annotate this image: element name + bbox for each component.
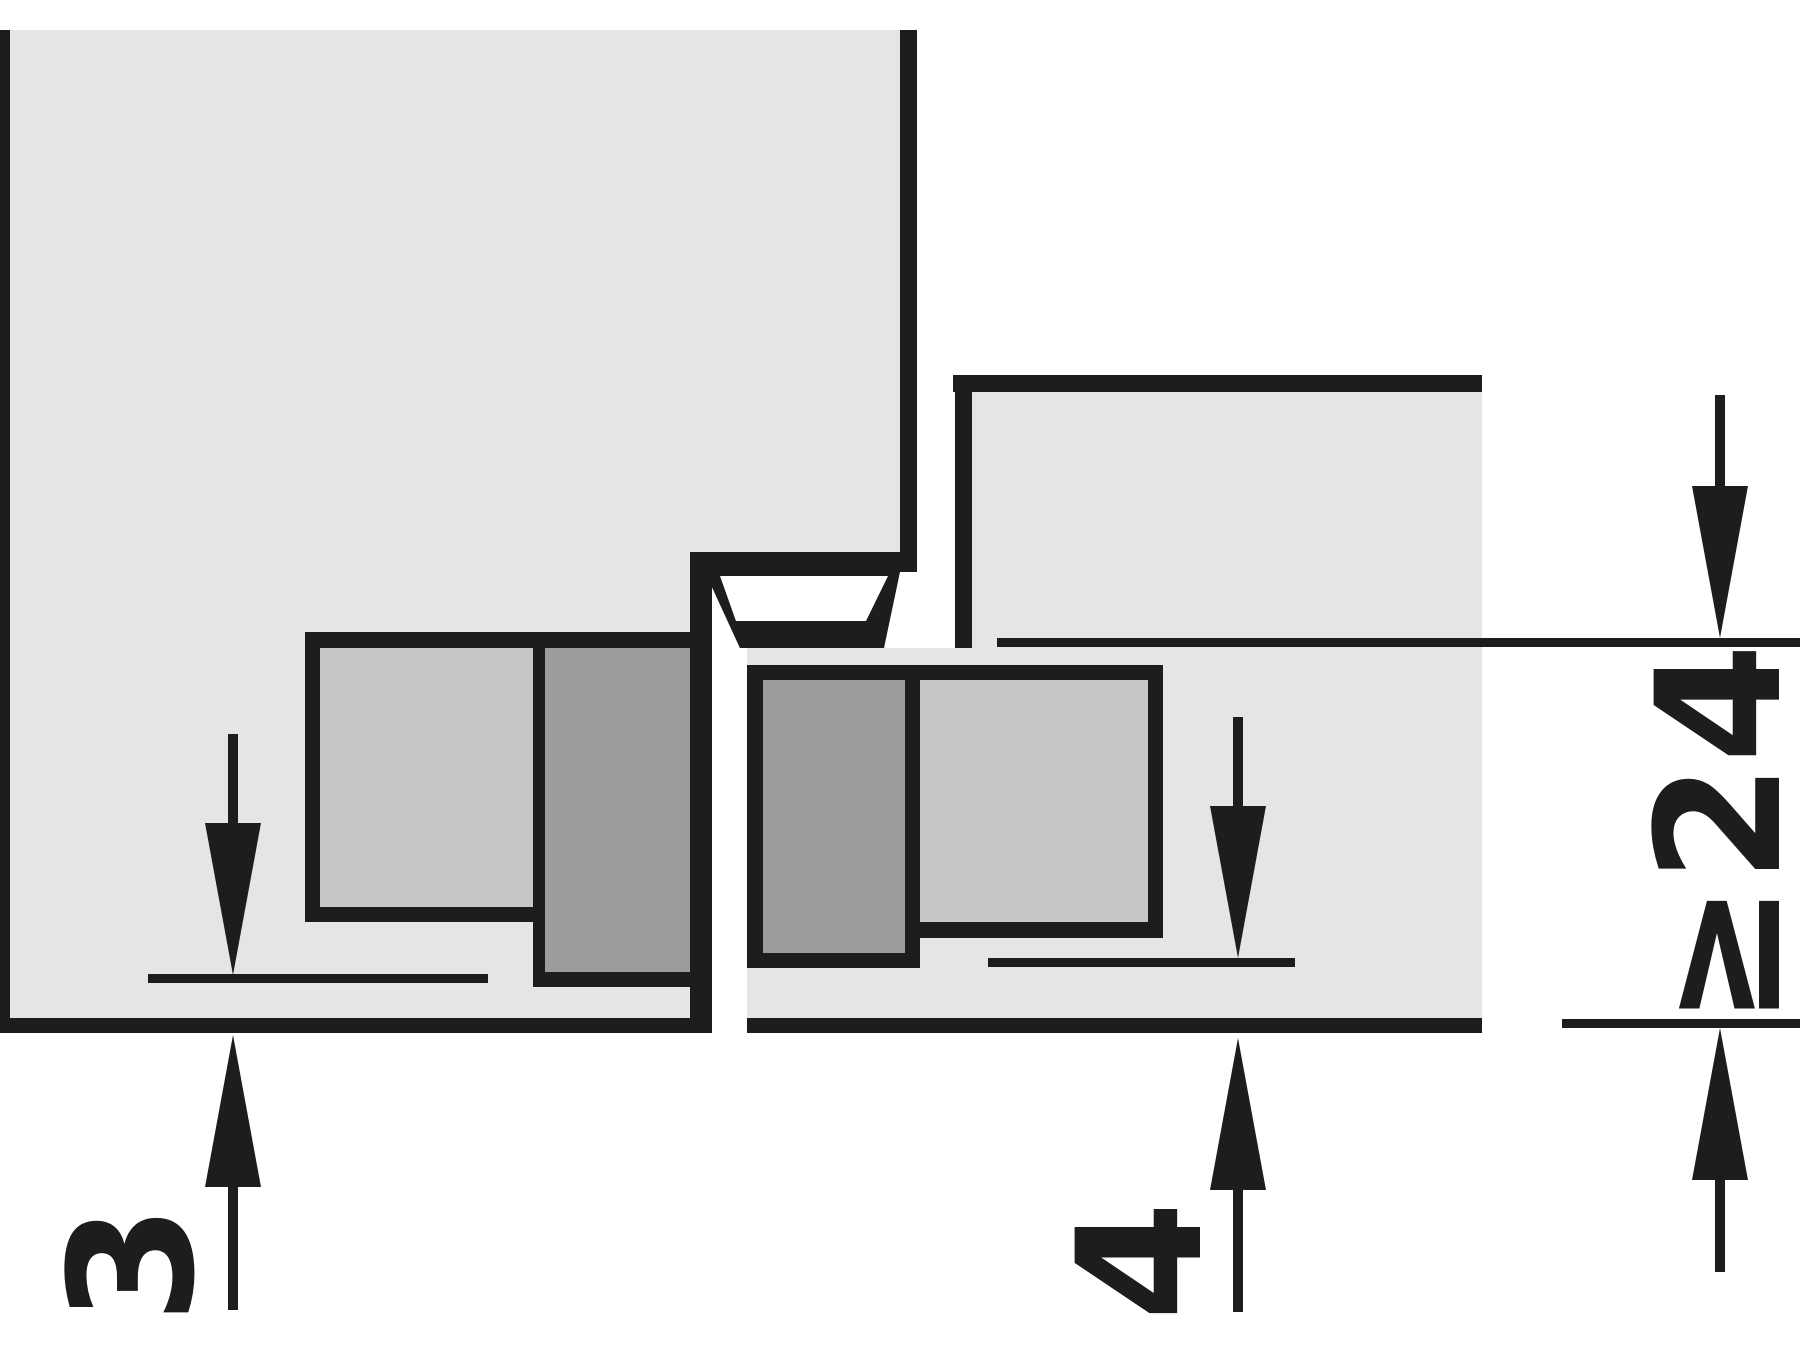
dim24-upper-arrow-tail [1715, 395, 1725, 488]
door-hinge-top-border [305, 632, 712, 648]
door-hinge-cup-light [320, 648, 533, 907]
frame-hinge-cup-light [920, 680, 1148, 922]
frame-hinge-divider [905, 680, 920, 953]
dim4-lower-arrowhead [1210, 1038, 1266, 1190]
frame-bottom-face-line [747, 1018, 1482, 1033]
dim-label-frame-face-offset: 4 [1055, 1201, 1227, 1321]
door-hinge-arm-bottom-border [533, 972, 712, 987]
dim4-upper-arrow-tail [1233, 717, 1243, 809]
dim3-lower-arrowhead [205, 1035, 261, 1187]
ref-line-frame-hinge-plate [988, 958, 1295, 967]
door-rebate-top-line [690, 552, 917, 572]
dim-label-min-frame-overlay: ≥24 [1634, 643, 1800, 1026]
dim24-lower-arrowhead [1692, 1028, 1748, 1180]
door-panel-upper [10, 30, 900, 552]
dim24-upper-arrowhead [1692, 486, 1748, 638]
door-left-edge-line [0, 30, 10, 1033]
frame-hinge-left-border [747, 665, 763, 968]
door-hinge-cup-bottom-border [305, 907, 545, 922]
frame-hinge-arm-bottom-border [747, 953, 920, 968]
frame-hinge-cup-bottom-border [905, 922, 1163, 938]
dim3-upper-arrow-tail [228, 734, 238, 829]
ref-line-door-hinge-plate [148, 974, 488, 983]
seal-profile-cavity [720, 576, 888, 621]
frame-top-edge-line [953, 375, 1482, 392]
frame-hinge-arm-dark [763, 680, 905, 953]
frame-hinge-right-border [1148, 665, 1163, 938]
hinge-section-drawing: 3 4 ≥24 [0, 0, 1800, 1350]
door-hinge-arm-dark [545, 648, 690, 972]
frame-left-edge-line [955, 375, 972, 648]
frame-hinge-top-border [747, 665, 1163, 680]
door-right-edge-line [900, 30, 917, 572]
dim-label-door-face-offset: 3 [47, 1204, 219, 1324]
door-rebate-edge-line [690, 552, 712, 1033]
door-hinge-divider [533, 648, 545, 987]
dim24-lower-arrow-tail [1715, 1178, 1725, 1272]
door-hinge-left-border [305, 632, 320, 922]
door-bottom-face-line [0, 1018, 712, 1033]
